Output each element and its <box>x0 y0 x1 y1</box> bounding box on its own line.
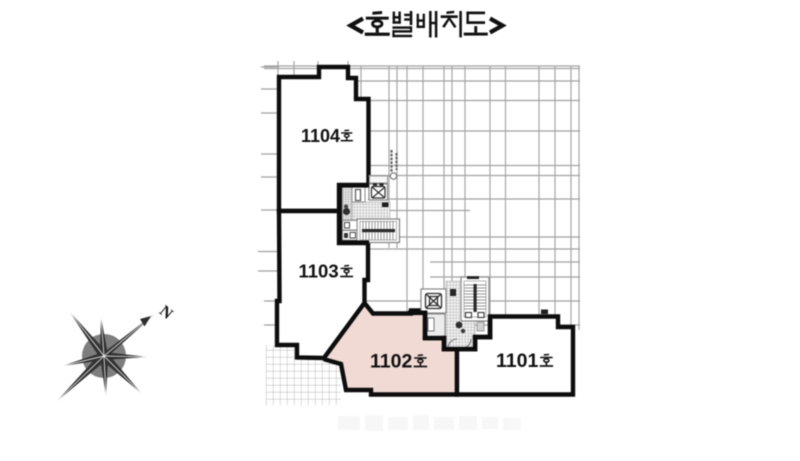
svg-text:1102: 1102 <box>370 351 412 373</box>
svg-text:1103: 1103 <box>299 261 339 282</box>
svg-text:1104: 1104 <box>301 126 340 146</box>
svg-text:1101: 1101 <box>496 350 538 372</box>
